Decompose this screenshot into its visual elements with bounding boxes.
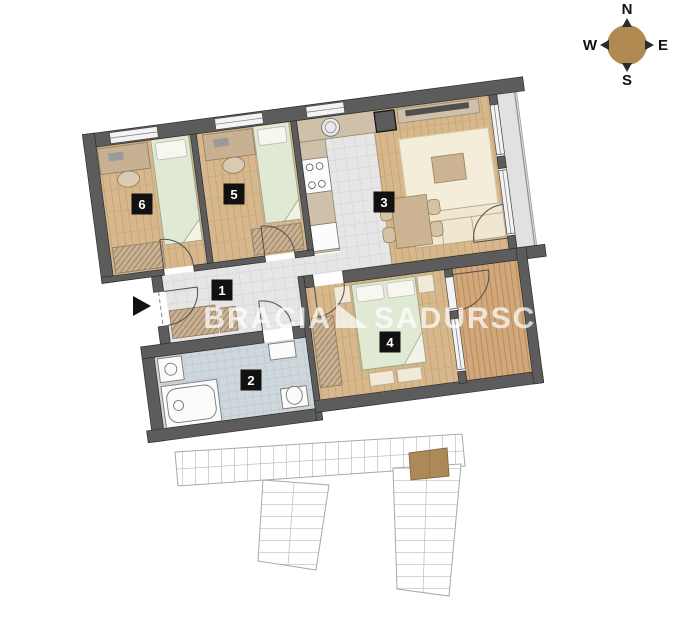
stove <box>302 157 332 194</box>
compass-rose: N E S W <box>583 1 668 89</box>
dining-table <box>390 194 432 248</box>
pillow <box>356 284 385 302</box>
compass-pointer-west-icon <box>600 40 609 50</box>
nightstand <box>417 274 435 293</box>
room-label-5: 5 <box>224 184 245 205</box>
fridge <box>310 222 339 251</box>
apartment-plan <box>82 77 563 446</box>
wall-entry <box>152 276 164 293</box>
site-plan <box>175 434 465 596</box>
floor-plan-canvas: BRACIA SADURSCY 1 2 3 4 5 6 <box>0 0 691 630</box>
dining-chair <box>382 227 396 243</box>
watermark: BRACIA SADURSCY <box>203 302 558 335</box>
compass-pointer-north-icon <box>622 18 632 27</box>
room-label-4: 4 <box>380 332 401 353</box>
room-number: 3 <box>380 195 387 210</box>
room-label-3: 3 <box>374 192 395 213</box>
compass-disc <box>607 25 647 65</box>
room-number: 1 <box>218 283 225 298</box>
wall-right-chunk <box>497 156 506 169</box>
wall-right-chunk <box>489 94 498 105</box>
dining-chair <box>427 199 441 215</box>
floor-plan-page: BRACIA SADURSCY 1 2 3 4 5 6 <box>0 0 691 630</box>
entrance-arrow-icon <box>133 296 151 316</box>
bench <box>397 367 422 383</box>
wall-room4-right <box>444 269 453 278</box>
coffee-table <box>431 153 466 183</box>
compass-label-south: S <box>622 72 632 89</box>
wall-room4-right <box>458 371 467 384</box>
compass-label-east: E <box>658 37 668 54</box>
watermark-text-first: BRACIA <box>203 302 332 335</box>
room-number: 6 <box>138 197 145 212</box>
pillow <box>257 126 287 146</box>
site-right-wing <box>393 464 461 596</box>
room-label-6: 6 <box>132 194 153 215</box>
compass-pointer-east-icon <box>645 40 654 50</box>
shaft <box>374 110 396 132</box>
wall-room4-top <box>304 275 314 288</box>
compass-label-west: W <box>583 37 598 54</box>
wall-right-chunk <box>507 235 517 249</box>
room-label-1: 1 <box>212 280 233 301</box>
compass-pointer-south-icon <box>622 63 632 72</box>
room-label-2: 2 <box>241 370 262 391</box>
washing-machine <box>157 356 184 383</box>
dining-chair <box>430 221 444 237</box>
bathroom-sink <box>268 341 296 360</box>
room-number: 5 <box>230 187 237 202</box>
watermark-text-second: SADURSCY <box>374 302 558 335</box>
bench <box>369 370 394 386</box>
room-number: 4 <box>386 335 394 350</box>
pillow <box>386 280 415 298</box>
pillow <box>155 139 187 160</box>
nightstand <box>333 285 351 304</box>
wall-entry <box>158 325 170 344</box>
compass-label-north: N <box>622 1 633 18</box>
room-number: 2 <box>247 373 254 388</box>
